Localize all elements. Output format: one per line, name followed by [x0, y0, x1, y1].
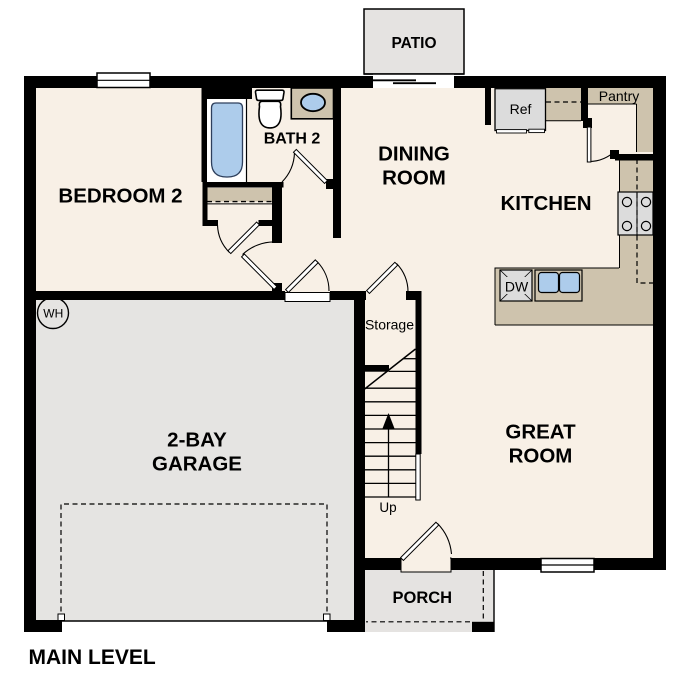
svg-text:PORCH: PORCH [393, 589, 453, 607]
svg-text:2-BAY: 2-BAY [167, 428, 227, 451]
svg-text:BATH 2: BATH 2 [264, 131, 321, 148]
svg-text:DW: DW [505, 279, 529, 295]
svg-text:KITCHEN: KITCHEN [500, 192, 591, 215]
svg-text:PATIO: PATIO [391, 35, 436, 52]
svg-text:GREAT: GREAT [505, 421, 576, 444]
svg-text:Ref: Ref [510, 101, 532, 117]
svg-text:BEDROOM 2: BEDROOM 2 [58, 185, 182, 208]
svg-text:Storage: Storage [365, 317, 414, 333]
svg-text:Up: Up [379, 500, 396, 515]
svg-text:DINING: DINING [378, 142, 450, 165]
svg-text:WH: WH [43, 307, 63, 321]
svg-text:ROOM: ROOM [382, 167, 446, 190]
svg-text:ROOM: ROOM [509, 445, 573, 468]
svg-text:GARAGE: GARAGE [152, 453, 242, 476]
svg-text:MAIN LEVEL: MAIN LEVEL [29, 646, 156, 669]
svg-text:Pantry: Pantry [599, 88, 639, 104]
